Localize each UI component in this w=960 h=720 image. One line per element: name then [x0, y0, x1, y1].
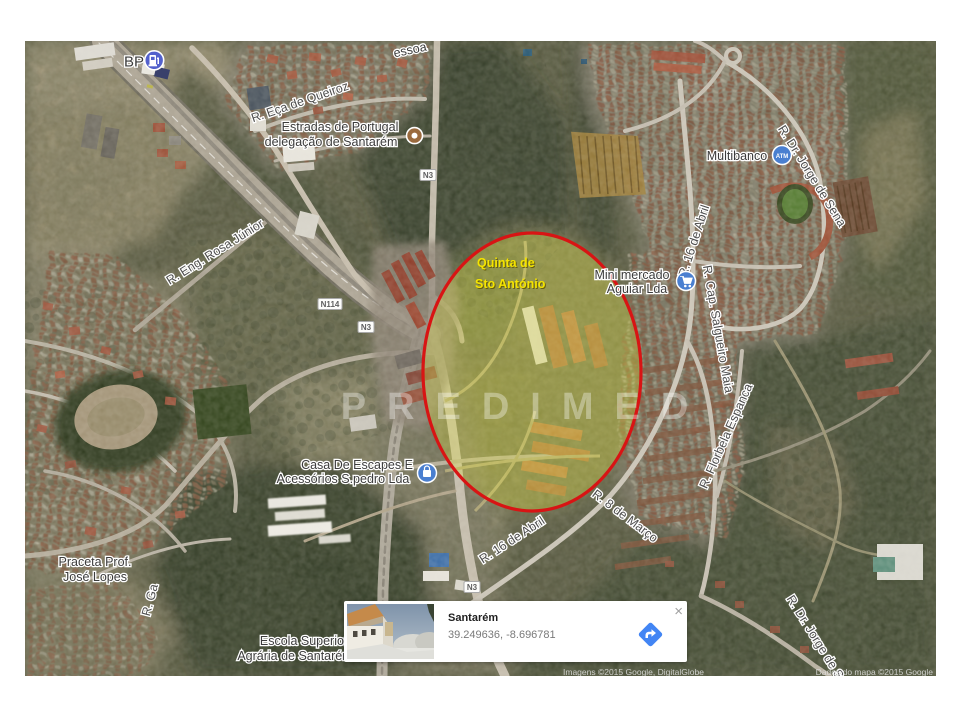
svg-text:Casa De Escapes E: Casa De Escapes E: [301, 458, 413, 472]
svg-text:Acessórios S.pedro Lda: Acessórios S.pedro Lda: [277, 472, 410, 486]
svg-text:N3: N3: [423, 171, 434, 180]
svg-text:Estradas de Portugal: Estradas de Portugal: [282, 120, 399, 134]
svg-text:ATM: ATM: [776, 154, 789, 160]
svg-text:Quinta de: Quinta de: [477, 256, 535, 270]
svg-text:Praceta Prof.: Praceta Prof.: [59, 555, 132, 569]
svg-text:Mini mercado: Mini mercado: [594, 268, 669, 282]
svg-text:N3: N3: [467, 583, 478, 592]
svg-text:José Lopes: José Lopes: [63, 570, 127, 584]
svg-text:N114: N114: [321, 300, 340, 309]
svg-text:delegação de Santarém: delegação de Santarém: [265, 135, 398, 149]
svg-text:Aguiar Lda: Aguiar Lda: [607, 282, 668, 296]
svg-text:Multibanco: Multibanco: [707, 149, 767, 163]
svg-text:BP: BP: [124, 54, 144, 71]
svg-text:PREDIMED: PREDIMED: [341, 386, 710, 428]
svg-text:Dados do mapa ©2015 Google: Dados do mapa ©2015 Google: [816, 667, 934, 676]
svg-text:N3: N3: [361, 323, 372, 332]
svg-text:Sto António: Sto António: [475, 277, 546, 291]
svg-text:Escola Superior: Escola Superior: [260, 634, 348, 648]
svg-text:Agrária de Santarém: Agrária de Santarém: [237, 649, 352, 663]
svg-text:Imagens ©2015 Google, DigitalG: Imagens ©2015 Google, DigitalGlobe: [563, 667, 704, 676]
